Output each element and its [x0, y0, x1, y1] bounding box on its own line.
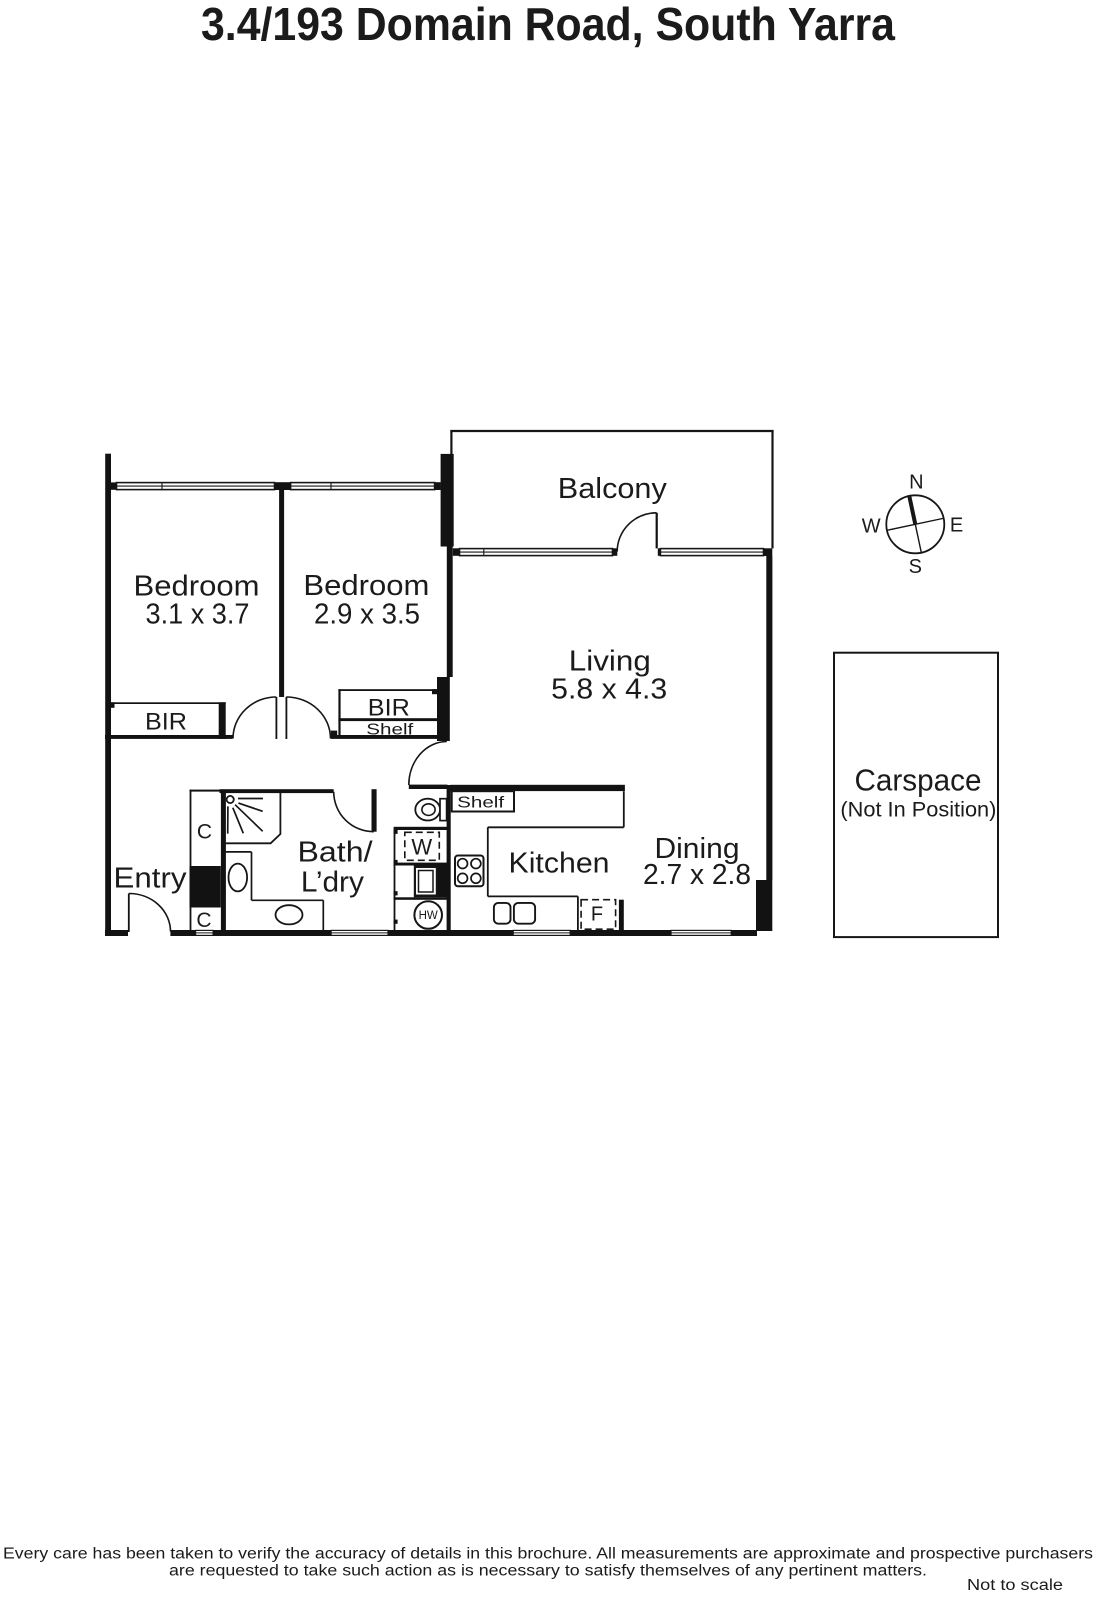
svg-text:3.1 x 3.7: 3.1 x 3.7 — [146, 599, 250, 631]
svg-text:Bath/: Bath/ — [298, 837, 374, 869]
svg-text:Carspace: Carspace — [855, 762, 982, 797]
svg-text:Bedroom: Bedroom — [303, 570, 429, 602]
svg-text:Shelf: Shelf — [457, 794, 505, 811]
svg-text:C: C — [196, 909, 211, 932]
svg-text:2.7 x 2.8: 2.7 x 2.8 — [643, 859, 751, 891]
svg-text:BIR: BIR — [368, 695, 410, 722]
svg-text:S: S — [909, 556, 922, 578]
svg-text:L’dry: L’dry — [301, 867, 365, 899]
svg-text:F: F — [591, 904, 603, 926]
svg-text:W: W — [411, 835, 432, 860]
svg-text:Kitchen: Kitchen — [509, 848, 610, 880]
svg-text:2.9 x 3.5: 2.9 x 3.5 — [314, 599, 420, 631]
svg-text:Shelf: Shelf — [366, 721, 414, 738]
svg-text:(Not In Position): (Not In Position) — [840, 799, 996, 822]
svg-text:5.8 x 4.3: 5.8 x 4.3 — [551, 674, 667, 706]
svg-text:HW: HW — [419, 910, 438, 922]
svg-text:BIR: BIR — [145, 708, 187, 735]
svg-text:Not to scale: Not to scale — [967, 1577, 1063, 1594]
svg-text:W: W — [862, 516, 881, 538]
svg-text:3.4/193 Domain Road, South Yar: 3.4/193 Domain Road, South Yarra — [201, 0, 895, 50]
svg-text:are requested to take such act: are requested to take such action as is … — [169, 1563, 927, 1580]
svg-text:Every care has been taken to v: Every care has been taken to verify the … — [3, 1546, 1093, 1563]
svg-text:Balcony: Balcony — [558, 473, 668, 505]
svg-text:E: E — [950, 515, 963, 537]
svg-text:C: C — [197, 821, 212, 844]
svg-text:N: N — [909, 472, 923, 494]
svg-text:Entry: Entry — [114, 863, 188, 895]
